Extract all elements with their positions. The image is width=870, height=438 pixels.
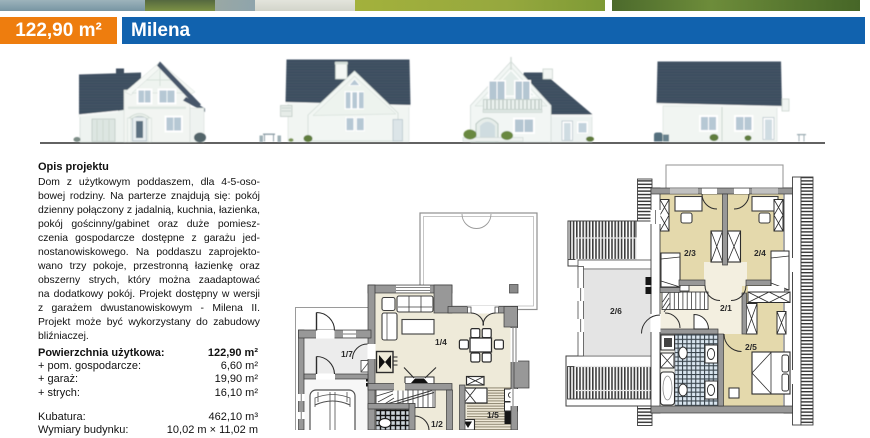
svg-text:1/7: 1/7 xyxy=(341,349,353,359)
svg-text:2/1: 2/1 xyxy=(720,303,732,313)
svg-text:1/2: 1/2 xyxy=(431,419,443,429)
svg-text:2/5: 2/5 xyxy=(745,342,757,352)
svg-text:1/5: 1/5 xyxy=(487,410,499,420)
svg-text:2/4: 2/4 xyxy=(754,248,766,258)
svg-text:2/6: 2/6 xyxy=(610,306,622,316)
svg-text:1/4: 1/4 xyxy=(435,337,447,347)
svg-text:2/3: 2/3 xyxy=(684,248,696,258)
